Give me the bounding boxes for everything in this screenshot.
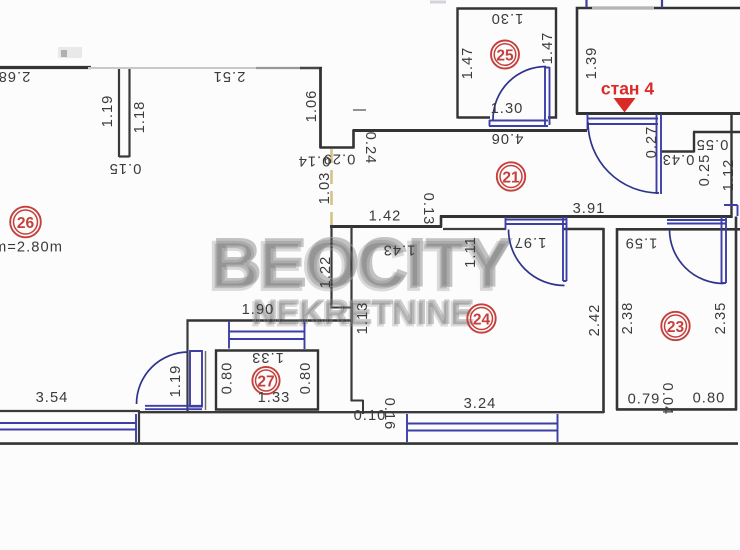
svg-text:24: 24 [473,311,491,328]
svg-text:3.91: 3.91 [573,201,606,217]
svg-text:1.59: 1.59 [625,235,658,251]
svg-text:2.38: 2.38 [620,302,636,335]
svg-text:1.33: 1.33 [251,349,284,365]
svg-text:1.22: 1.22 [318,256,334,289]
svg-text:1.18: 1.18 [132,101,148,134]
svg-text:2.35: 2.35 [713,302,729,335]
svg-text:1.90: 1.90 [242,302,275,318]
svg-text:0.55: 0.55 [696,136,729,152]
svg-text:0.43: 0.43 [662,151,695,167]
svg-text:21: 21 [502,169,520,186]
svg-text:25: 25 [496,47,514,64]
svg-text:1.33: 1.33 [258,390,291,406]
svg-text:0.13: 0.13 [420,193,436,226]
svg-text:1.30: 1.30 [491,10,524,26]
svg-text:2.42: 2.42 [587,304,603,337]
svg-text:3.24: 3.24 [464,396,497,412]
svg-text:1.97: 1.97 [514,234,547,250]
svg-text:0.25: 0.25 [697,154,713,187]
svg-text:0.04: 0.04 [659,383,675,416]
svg-text:1.43: 1.43 [383,242,416,258]
svg-text:0.27: 0.27 [644,126,660,159]
svg-text:0.14: 0.14 [298,153,331,169]
svg-text:1.19: 1.19 [100,95,116,128]
svg-text:0.80: 0.80 [693,390,726,406]
svg-text:26: 26 [17,215,35,232]
svg-text:0.79: 0.79 [628,391,661,407]
svg-text:1.47: 1.47 [540,32,556,65]
svg-text:2.51: 2.51 [213,68,246,84]
svg-text:3.54: 3.54 [36,390,69,406]
svg-text:1.30: 1.30 [491,101,524,117]
svg-text:27: 27 [257,373,274,390]
svg-text:1.13: 1.13 [355,302,371,335]
svg-text:1.19: 1.19 [168,365,184,398]
svg-text:0.80: 0.80 [298,362,314,395]
svg-text:1.06: 1.06 [304,90,320,123]
svg-text:m=2.80m: m=2.80m [0,240,63,256]
svg-text:стан 4: стан 4 [601,79,654,99]
svg-text:1.39: 1.39 [584,47,600,80]
svg-text:0.24: 0.24 [362,132,378,165]
svg-text:1.42: 1.42 [369,208,402,224]
svg-text:1.12: 1.12 [721,159,737,192]
svg-text:4.06: 4.06 [491,130,524,146]
svg-text:2.68: 2.68 [0,68,30,84]
svg-text:1.03: 1.03 [317,172,333,205]
svg-text:0.16: 0.16 [381,398,397,431]
svg-text:1.47: 1.47 [460,47,476,80]
svg-text:23: 23 [667,319,685,336]
svg-text:0.80: 0.80 [219,362,235,395]
svg-text:0.15: 0.15 [109,160,142,176]
svg-text:1.11: 1.11 [463,236,479,268]
